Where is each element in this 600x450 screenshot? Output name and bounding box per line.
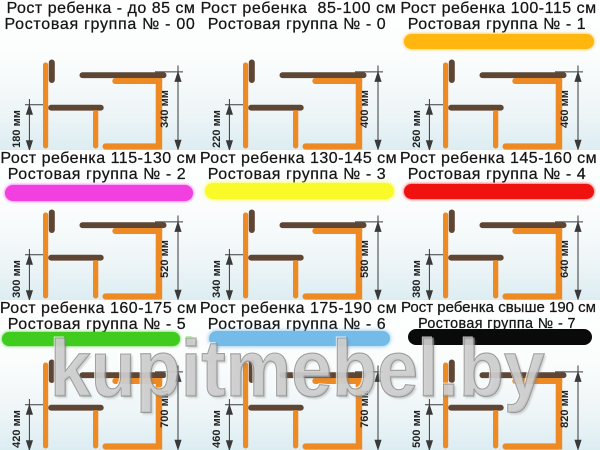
svg-text:260 мм: 260 мм — [411, 110, 423, 148]
svg-text:640 мм: 640 мм — [559, 240, 571, 278]
svg-text:220 мм: 220 мм — [211, 110, 223, 148]
svg-text:300 мм: 300 мм — [11, 260, 23, 298]
svg-text:380 мм: 380 мм — [411, 260, 423, 298]
svg-text:340 мм: 340 мм — [159, 90, 171, 128]
svg-text:520 мм: 520 мм — [159, 240, 171, 278]
svg-text:500 мм: 500 мм — [411, 410, 423, 448]
svg-text:420 мм: 420 мм — [11, 410, 23, 448]
svg-text:340 мм: 340 мм — [211, 260, 223, 298]
svg-text:460 мм: 460 мм — [559, 90, 571, 128]
svg-text:580 мм: 580 мм — [359, 240, 371, 278]
svg-text:400 мм: 400 мм — [359, 90, 371, 128]
svg-text:460 мм: 460 мм — [211, 410, 223, 448]
svg-text:180 мм: 180 мм — [11, 110, 23, 148]
svg-text:820 мм: 820 мм — [559, 390, 571, 428]
